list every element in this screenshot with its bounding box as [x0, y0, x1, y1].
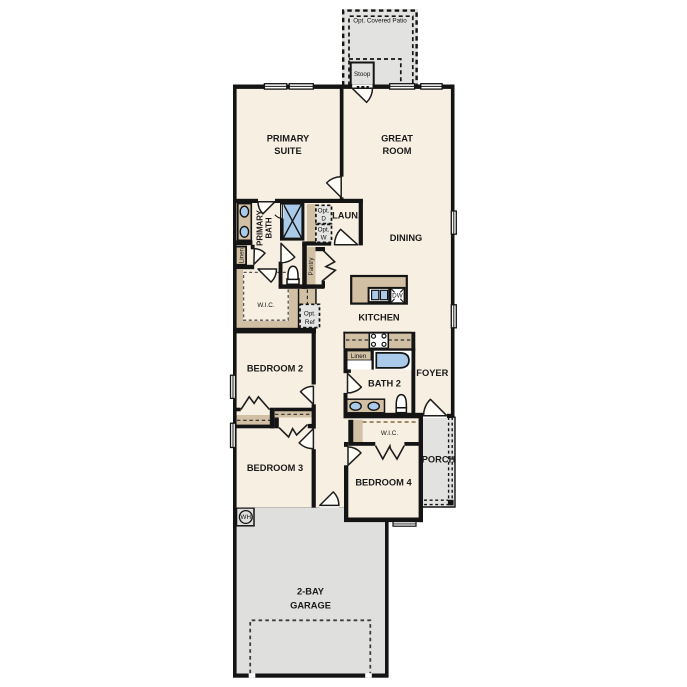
svg-text:BEDROOM 3: BEDROOM 3	[247, 463, 303, 473]
svg-text:FOYER: FOYER	[416, 368, 448, 378]
svg-text:BEDROOM 2: BEDROOM 2	[247, 363, 303, 373]
svg-text:BEDROOM 4: BEDROOM 4	[355, 477, 412, 487]
svg-text:D: D	[321, 216, 326, 223]
svg-text:PRIMARY: PRIMARY	[255, 209, 264, 245]
svg-text:W: W	[321, 235, 327, 242]
svg-text:BATH: BATH	[265, 217, 274, 238]
svg-text:PORCH: PORCH	[422, 455, 456, 465]
svg-text:2-BAY: 2-BAY	[297, 586, 325, 596]
svg-text:Stoop: Stoop	[354, 71, 371, 78]
svg-text:LAUN.: LAUN.	[332, 211, 360, 221]
svg-text:GREAT: GREAT	[381, 134, 413, 144]
svg-text:PRIMARY: PRIMARY	[267, 134, 310, 144]
svg-text:ROOM: ROOM	[383, 146, 412, 156]
svg-text:KITCHEN: KITCHEN	[358, 312, 400, 322]
svg-text:Ref: Ref	[305, 319, 315, 326]
svg-text:Opt.: Opt.	[318, 208, 330, 215]
svg-text:W.I.C.: W.I.C.	[381, 430, 398, 437]
svg-text:DINING: DINING	[390, 233, 423, 243]
svg-text:Opt. Covered Patio: Opt. Covered Patio	[353, 18, 407, 25]
svg-text:GARAGE: GARAGE	[290, 601, 331, 611]
svg-text:BATH 2: BATH 2	[368, 379, 401, 389]
svg-text:Linen: Linen	[351, 353, 367, 360]
svg-text:SUITE: SUITE	[274, 146, 301, 156]
svg-text:Pantry: Pantry	[308, 257, 315, 276]
svg-text:DW: DW	[392, 293, 403, 300]
svg-text:WH: WH	[241, 514, 252, 521]
svg-text:Linen: Linen	[238, 247, 245, 263]
svg-text:W.I.C.: W.I.C.	[257, 302, 274, 309]
svg-text:Opt.: Opt.	[304, 311, 316, 318]
svg-text:Opt.: Opt.	[318, 227, 330, 234]
